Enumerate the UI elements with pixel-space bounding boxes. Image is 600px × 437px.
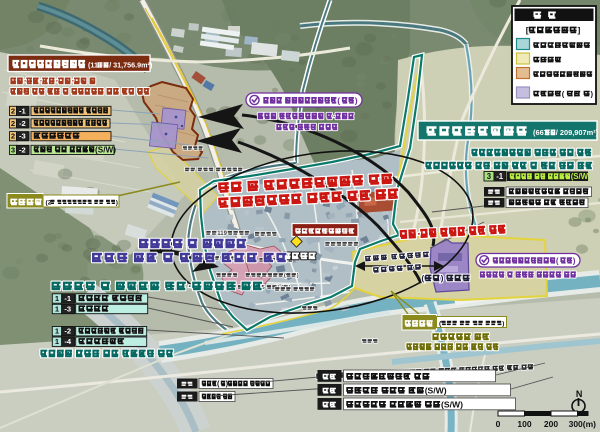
svg-text:): ) <box>573 256 576 265</box>
svg-text:300(m): 300(m) <box>569 419 597 429</box>
svg-text:·: · <box>55 76 58 86</box>
svg-text:[: [ <box>526 25 529 35</box>
svg-text:119: 119 <box>217 231 227 237</box>
svg-text:): ) <box>297 273 299 279</box>
svg-text:2: 2 <box>11 132 15 141</box>
svg-text:2: 2 <box>11 106 15 115</box>
svg-text:-2: -2 <box>19 145 26 154</box>
svg-text:3: 3 <box>11 145 15 154</box>
svg-text:3: 3 <box>487 172 492 181</box>
svg-text:-1: -1 <box>496 172 504 181</box>
svg-text:(S/W): (S/W) <box>441 399 463 409</box>
svg-text:·: · <box>333 111 336 121</box>
svg-text:/ 209,907m²): / 209,907m²) <box>556 128 599 137</box>
svg-text:(S/W): (S/W) <box>95 145 116 154</box>
svg-text:): ) <box>116 199 118 206</box>
svg-text:N: N <box>576 389 583 399</box>
svg-text:·: · <box>71 76 74 86</box>
svg-text:100: 100 <box>517 419 531 429</box>
svg-text:·: · <box>188 281 192 293</box>
svg-text:-2: -2 <box>64 327 71 336</box>
svg-text:(: ( <box>284 273 286 279</box>
svg-text:(11: (11 <box>88 61 98 70</box>
svg-text:·: · <box>39 76 42 86</box>
svg-text:-2: -2 <box>19 119 26 128</box>
svg-text:-1: -1 <box>64 294 72 303</box>
svg-text:(: ( <box>421 273 424 283</box>
svg-text:(: ( <box>556 256 559 265</box>
svg-text:): ) <box>441 273 444 283</box>
svg-text:): ) <box>355 95 358 105</box>
svg-text:-3: -3 <box>64 305 71 314</box>
svg-text:(2: (2 <box>46 199 52 206</box>
svg-text:): ) <box>502 320 504 327</box>
svg-text:·: · <box>416 227 421 241</box>
svg-text:·: · <box>24 76 27 86</box>
svg-text:-3: -3 <box>19 132 26 141</box>
svg-text:(S/W): (S/W) <box>571 172 591 181</box>
svg-text:-1: -1 <box>19 106 27 115</box>
svg-text:(667: (667 <box>533 128 548 137</box>
svg-text:2: 2 <box>11 119 15 128</box>
svg-text:(S/W): (S/W) <box>425 385 447 395</box>
svg-text:-4: -4 <box>64 337 72 346</box>
svg-text:]: ] <box>578 25 581 35</box>
svg-text:(: ( <box>337 95 340 105</box>
svg-text:0: 0 <box>496 419 501 429</box>
svg-text:200: 200 <box>544 419 558 429</box>
svg-text:/ 31,756.9m²): / 31,756.9m²) <box>109 61 153 70</box>
